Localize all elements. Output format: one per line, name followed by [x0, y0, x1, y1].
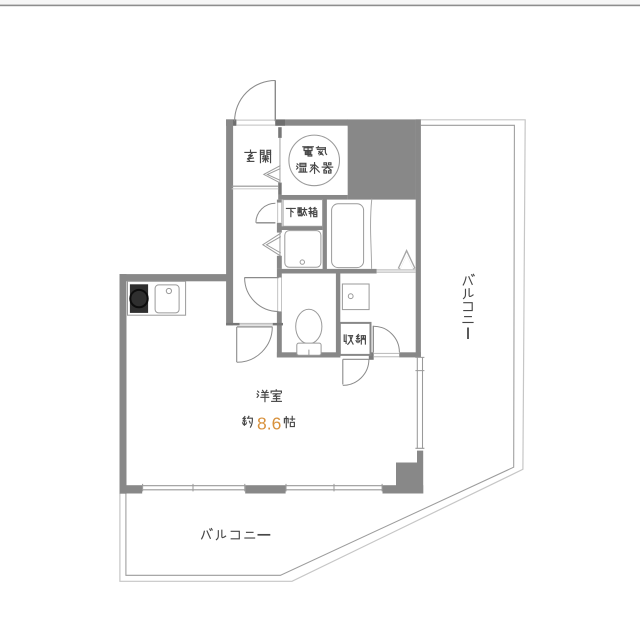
svg-text:8.6: 8.6 [257, 414, 281, 434]
